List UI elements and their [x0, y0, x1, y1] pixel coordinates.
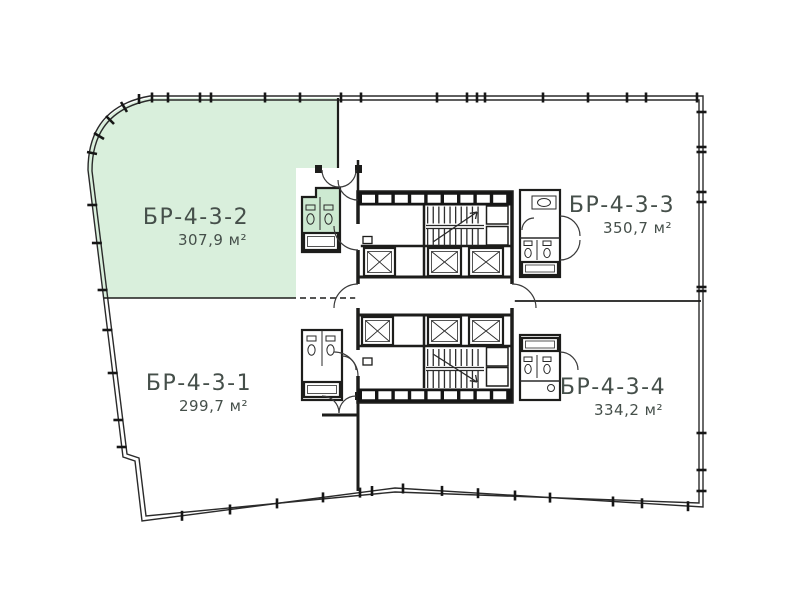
elevator-icon	[362, 317, 393, 345]
sink-counter-icon	[522, 338, 558, 351]
vent-shaft-band-top	[358, 192, 512, 206]
service-core	[355, 192, 515, 402]
unit-region-br-4-3-2[interactable]	[88, 98, 337, 298]
unit-label-br-4-3-1: БР-4-3-1	[146, 371, 252, 396]
sink-counter-icon	[304, 233, 338, 250]
unit-label-br-4-3-3: БР-4-3-3	[569, 193, 675, 218]
elevator-icon	[428, 317, 461, 345]
bathroom-unit-2	[302, 188, 340, 252]
elevator-icon	[364, 248, 395, 276]
unit-area-br-4-3-3: 350,7 м²	[603, 219, 672, 237]
unit-label-br-4-3-2: БР-4-3-2	[143, 205, 249, 230]
bathroom-unit-1	[302, 330, 342, 400]
door-arc	[339, 170, 356, 187]
elevator-icon	[469, 248, 503, 276]
floor-plan-svg: БР-4-3-2 307,9 м² БР-4-3-1 299,7 м² БР-4…	[0, 0, 800, 601]
door-jamb	[315, 165, 322, 173]
vent-shaft-band-bottom	[358, 389, 512, 403]
unit-area-br-4-3-4: 334,2 м²	[594, 401, 663, 419]
door-opening	[355, 284, 361, 308]
bathroom-unit-3	[520, 190, 560, 277]
door-opening	[355, 224, 361, 250]
door-arc	[322, 170, 339, 187]
utility-box	[363, 358, 372, 365]
bathroom-unit-4	[520, 335, 560, 400]
floor-plan-page: БР-4-3-2 307,9 м² БР-4-3-1 299,7 м² БР-4…	[0, 0, 800, 601]
unit-label-br-4-3-4: БР-4-3-4	[560, 375, 666, 400]
elevator-icon	[469, 317, 503, 345]
sink-counter-icon	[522, 262, 558, 275]
elevator-icon	[428, 248, 461, 276]
unit-area-br-4-3-1: 299,7 м²	[179, 397, 248, 415]
closet	[487, 227, 509, 246]
closet	[487, 206, 509, 224]
sink-counter-icon	[304, 382, 340, 397]
unit-area-br-4-3-2: 307,9 м²	[178, 231, 247, 249]
door-opening	[509, 284, 515, 308]
closet	[487, 368, 509, 387]
closet	[487, 348, 509, 367]
utility-box	[363, 237, 372, 244]
